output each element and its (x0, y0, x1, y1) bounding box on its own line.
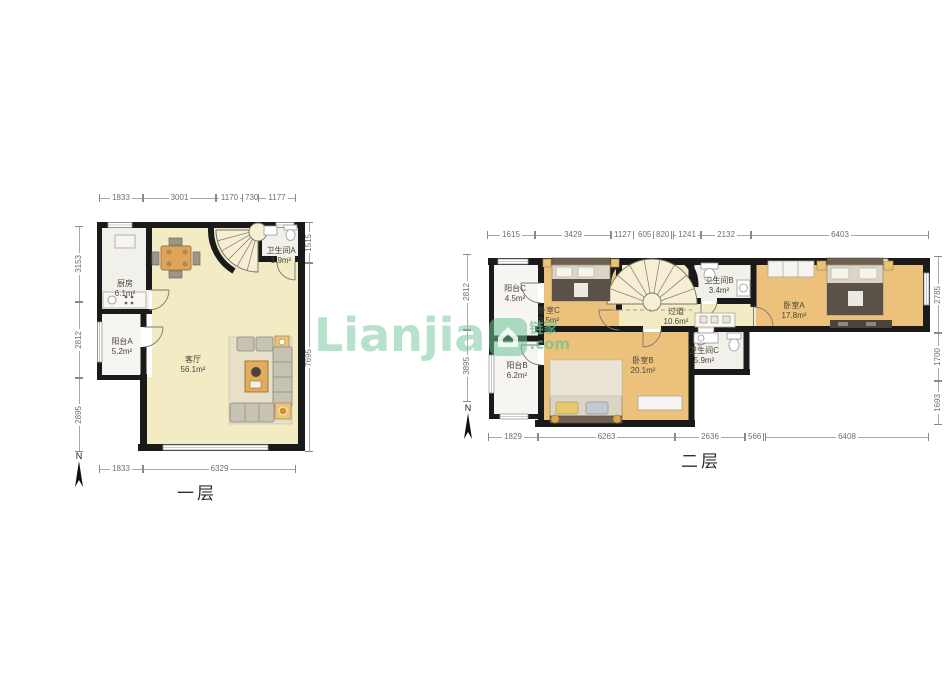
room-area: 20.1m² (611, 366, 675, 376)
room-label-bed-a: 卧室A 17.8m² (762, 301, 826, 321)
lianjia-watermark: Lianjia 链家 .com (314, 312, 570, 358)
dim-label: 2132 (701, 229, 751, 241)
dim-label: 1177 (258, 192, 296, 204)
dim-label: 566 (745, 431, 765, 443)
dim-label: 1833 (99, 192, 143, 204)
room-name: 卫生间C (672, 346, 736, 356)
dim-label: 6408 (765, 431, 929, 443)
dim-label: 730 (243, 192, 258, 204)
room-name: 卧室A (762, 301, 826, 311)
room-label-balcony-c: 阳台C 4.5m² (483, 284, 547, 304)
dim-label: 1127 (611, 229, 636, 241)
dim-label: 2895 (73, 378, 85, 452)
sofa-set (229, 336, 292, 424)
dim-label: 605 (636, 229, 653, 241)
compass-needle-icon (462, 413, 474, 439)
room-area: 5.2m² (90, 347, 154, 357)
dim-label: 6329 (143, 463, 296, 475)
room-label-living: 客厅 56.1m² (161, 355, 225, 375)
room-label-bath-b: 卫生间B 3.4m² (687, 276, 751, 296)
room-name: 卫生间B (687, 276, 751, 286)
room-area: 10.6m² (644, 317, 708, 327)
room-name: 阳台C (483, 284, 547, 294)
room-label-bath-c: 卫生间C 5.9m² (672, 346, 736, 366)
north-letter: N (71, 452, 87, 461)
room-area: 3.4m² (687, 286, 751, 296)
room-name: 卧室B (611, 356, 675, 366)
room-label-corridor: 过道 10.6m² (644, 307, 708, 327)
room-area: 17.8m² (762, 311, 826, 321)
dim-label: 2812 (73, 302, 85, 378)
room-name: 过道 (644, 307, 708, 317)
dim-label: 1615 (487, 229, 535, 241)
dim-label: 1833 (99, 463, 143, 475)
compass-needle-icon (73, 461, 85, 487)
north-arrow: N (460, 404, 476, 444)
dim-label: 1170 (216, 192, 243, 204)
room-area: 4.5m² (483, 294, 547, 304)
dim-label: 3153 (73, 226, 85, 302)
room-label-bed-b: 卧室B 20.1m² (611, 356, 675, 376)
watermark-suffix: 链家 .com (529, 320, 570, 352)
room-area: 56.1m² (161, 365, 225, 375)
room-area: 6.1m² (93, 289, 157, 299)
room-name: 阳台A (90, 337, 154, 347)
room-area: 5.9m² (672, 356, 736, 366)
dim-label: 1693 (932, 381, 944, 425)
room-label-bath-a: 卫生间A 1.9m² (249, 246, 313, 266)
lianjia-house-logo-icon (489, 318, 527, 356)
dim-label: 1241 (673, 229, 701, 241)
lianjia-brand-text: Lianjia (314, 312, 485, 358)
dim-label: 3001 (143, 192, 216, 204)
north-letter: N (460, 404, 476, 413)
dim-label: 6403 (751, 229, 929, 241)
dim-label: 1700 (932, 333, 944, 381)
bed-c (543, 258, 619, 301)
floor1-label: 一层 (152, 479, 242, 504)
lianjia-cn-text: 链家 (529, 320, 570, 336)
dim-label: 3429 (535, 229, 611, 241)
lianjia-domain-text: .com (529, 336, 570, 352)
dim-label: 1829 (488, 431, 538, 443)
room-name: 客厅 (161, 355, 225, 365)
floor2-label: 二层 (656, 447, 746, 472)
dim-label: 820 (653, 229, 673, 241)
dim-label: 2785 (932, 256, 944, 333)
north-arrow: N (71, 452, 87, 492)
room-name: 卫生间A (249, 246, 313, 256)
dim-label: 6263 (538, 431, 675, 443)
room-label-balcony-b: 阳台B 6.2m² (485, 361, 549, 381)
room-name: 厨房 (93, 279, 157, 289)
room-name: 阳台B (485, 361, 549, 371)
room-area: 1.9m² (249, 256, 313, 266)
floorplan-page: 1833 3001 1170 730 1177 1833 6329 3153 2… (0, 0, 944, 679)
dim-label: 2636 (675, 431, 745, 443)
room-label-kitchen: 厨房 6.1m² (93, 279, 157, 299)
room-label-balcony-a: 阳台A 5.2m² (90, 337, 154, 357)
room-area: 6.2m² (485, 371, 549, 381)
